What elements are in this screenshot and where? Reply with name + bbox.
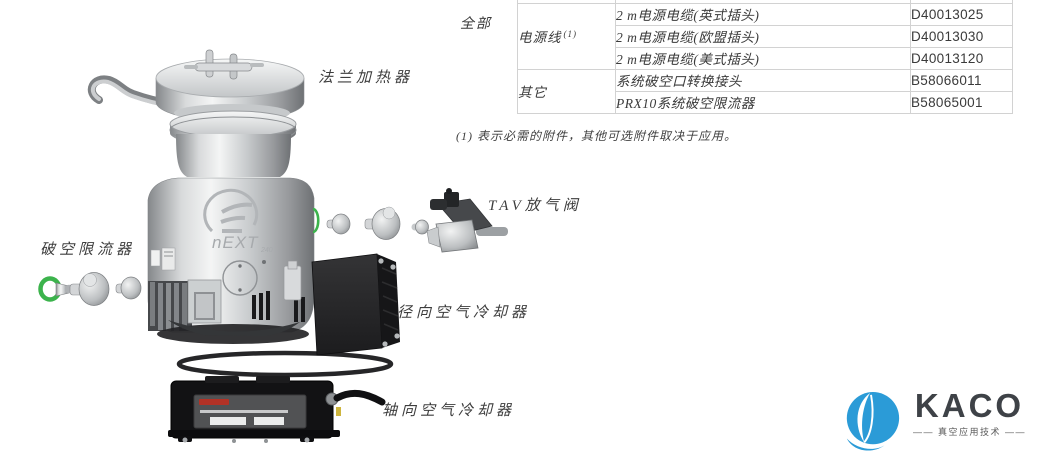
part-cell: D40013025 — [911, 3, 1013, 25]
cooler-brand-mark — [199, 399, 229, 405]
axial-cooler-illustration — [168, 376, 382, 443]
pump-body-illustration: nEXT 240 — [148, 111, 318, 344]
label-axial-cooler: 轴向空气冷却器 — [382, 399, 515, 420]
desc-cell: 2 m电源电缆(英式插头) — [616, 3, 911, 25]
flange-heater-illustration — [92, 50, 304, 122]
group-label: 电源线 — [518, 30, 562, 45]
table-footnote: (1) 表示必需的附件，其他可选附件取决于应用。 — [456, 127, 737, 144]
desc-cell: PRX10系统破空限流器 — [616, 91, 911, 113]
part-cell: D40013030 — [911, 25, 1013, 47]
pump-cable-loop-icon — [179, 353, 391, 375]
part-cell: B58066011 — [911, 69, 1013, 91]
part-cell: D40013120 — [911, 47, 1013, 69]
group-superscript: (1) — [564, 29, 578, 39]
brand-name: KACO — [913, 388, 1026, 424]
brand-tagline: —— 真空应用技术 —— — [913, 425, 1026, 438]
pump-model-text: nEXT — [212, 233, 259, 252]
page: nEXT 240 — [0, 0, 1055, 470]
accessories-table: 电源线(1) 2 m电源电缆(英式插头) D40013025 2 m电源电缆(欧… — [517, 0, 1013, 114]
part-cell: B58065001 — [911, 91, 1013, 113]
kaco-logo-icon — [841, 388, 903, 456]
label-vent-restrictor: 破空限流器 — [40, 238, 135, 259]
vent-restrictor-parts-illustration — [41, 273, 142, 306]
desc-cell: 系统破空口转换接头 — [616, 69, 911, 91]
label-tav-valve: TAV放气阀 — [488, 194, 582, 215]
group-label: 其它 — [518, 85, 547, 100]
tav-valve-illustration — [327, 188, 508, 252]
table-rowgroup-all: 全部 — [460, 13, 492, 33]
group-cell-other: 其它 — [518, 69, 616, 113]
brand-block: KACO —— 真空应用技术 —— — [841, 388, 1026, 456]
desc-cell: 2 m电源电缆(美式插头) — [616, 47, 911, 69]
table-row: 电源线(1) 2 m电源电缆(英式插头) D40013025 — [518, 3, 1013, 25]
table-row: 其它 系统破空口转换接头 B58066011 — [518, 69, 1013, 91]
label-flange-heater: 法兰加热器 — [318, 66, 413, 87]
pump-model-suffix-text: 240 — [260, 247, 273, 254]
radial-cooler-illustration — [312, 254, 400, 355]
group-cell-power-cords: 电源线(1) — [518, 3, 616, 69]
desc-cell: 2 m电源电缆(欧盟插头) — [616, 25, 911, 47]
label-radial-cooler: 径向空气冷却器 — [397, 301, 530, 322]
